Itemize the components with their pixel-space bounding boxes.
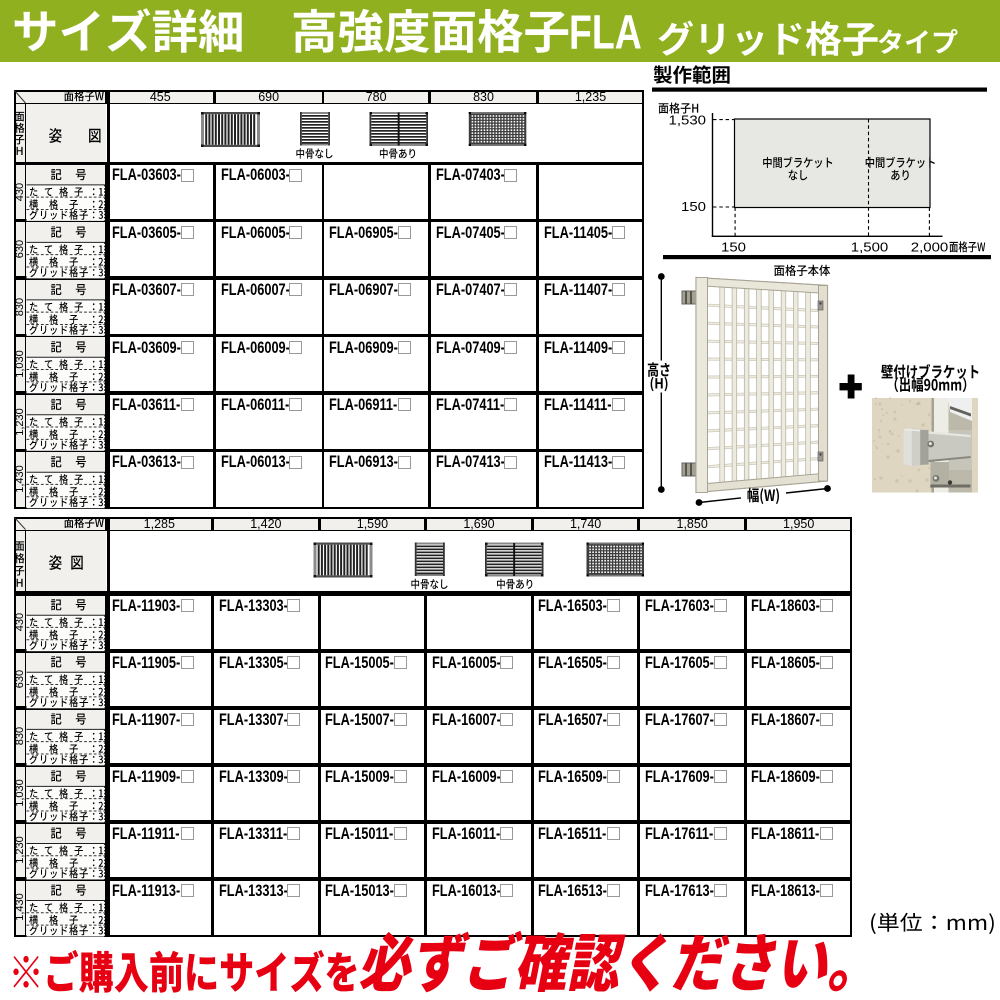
svg-text:150: 150 — [721, 240, 746, 254]
svg-text:FLA: FLA — [569, 6, 642, 60]
svg-text:1,500: 1,500 — [851, 240, 889, 254]
svg-text:1,530: 1,530 — [668, 114, 706, 128]
svg-text:150: 150 — [681, 200, 706, 214]
svg-text:2,000: 2,000 — [911, 240, 949, 254]
